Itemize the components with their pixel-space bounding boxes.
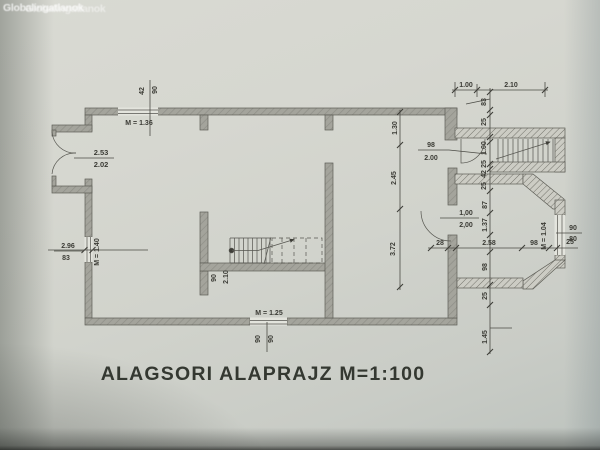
left-window-labels: 2.96 83 M = 1.40	[48, 238, 148, 266]
stair-upper-flight-dashed	[272, 238, 322, 263]
dim-bay-1: 2.58	[482, 240, 496, 247]
right-wall	[448, 168, 457, 205]
vestibule-top-wall	[52, 125, 92, 132]
top-dimension-line: 1.00 2.10	[452, 82, 548, 97]
dim-right-8: 98	[482, 263, 489, 271]
left-window-label: M = 1.40	[94, 238, 101, 266]
dim-bay-2: 98	[530, 240, 538, 247]
wall-stub-a	[200, 115, 208, 130]
top-window	[118, 108, 158, 116]
dim-right-9: 25	[482, 292, 489, 300]
interior-door-height: 2.10	[223, 270, 230, 284]
left-wall	[85, 262, 92, 318]
stair-direction-arrow	[232, 240, 294, 251]
dim-left-0: 1.30	[392, 121, 399, 135]
stair-left-wall	[200, 212, 208, 263]
bottom-window-dim-a: 90	[255, 335, 262, 343]
wall-stub-b	[325, 115, 333, 130]
vestibule-bottom-wall	[52, 186, 92, 193]
stairhall-bottom-wall	[490, 162, 565, 172]
dim-bay-0: 28	[436, 240, 444, 247]
entry-door-labels: 2.53 2.02	[74, 148, 114, 169]
vestibule-jamb	[52, 176, 56, 186]
dim-right-5: 25	[481, 182, 488, 190]
bay-door-labels: 1,00 2,00	[440, 210, 479, 229]
dim-right-7: 1.37	[482, 218, 489, 232]
dim-right-2: 1.00	[481, 141, 488, 155]
stair-left-wall-stub	[200, 271, 208, 295]
bay-window-dim-b: 80	[569, 236, 577, 243]
dim-right-0: 83	[481, 98, 488, 106]
top-window-label: M = 1.36	[125, 120, 153, 127]
stairhall-top-wall	[455, 128, 565, 138]
left-window-sill: 83	[62, 255, 70, 262]
interior-door-labels: 90 2.10	[211, 270, 230, 284]
bay-lower-diagonal-wall	[523, 260, 565, 289]
bottom-window-dim-b: 90	[268, 335, 275, 343]
dim-right-4: 42	[481, 170, 488, 178]
annex-staircase	[496, 139, 553, 162]
stair-door-labels: 98 2.00	[418, 142, 487, 162]
bay-window-label: M = 1.04	[541, 222, 548, 250]
outer-walls	[52, 108, 457, 325]
dim-right-1: 25	[481, 118, 488, 126]
photo-of-floor-plan: Globalingatlanok Globalingatlanok	[0, 0, 600, 450]
bay-door-width: 1,00	[459, 210, 473, 217]
floor-plan-svg: 1.00 2.10 83 25 1.00 25 42 25 87	[0, 0, 600, 450]
bottom-window-label: M = 1.25	[255, 310, 283, 317]
dim-right-6: 87	[482, 201, 489, 209]
dim-left-2: 3.72	[390, 242, 397, 256]
entry-door-leaf-arc	[52, 153, 76, 174]
dim-left-1: 2.45	[391, 171, 398, 185]
right-wall	[448, 235, 457, 318]
stair-door-width: 98	[427, 142, 435, 149]
bay-top-wall	[455, 174, 523, 184]
bottom-window-labels: M = 1.25 90 90	[255, 310, 283, 352]
entry-door-height: 2.02	[94, 160, 109, 169]
left-dimension-chain: 1.30 2.45 3.72	[390, 109, 403, 290]
bay-window-dim-a: 90	[569, 225, 577, 232]
stair-south-wall	[200, 263, 332, 271]
partition-wall	[325, 163, 333, 318]
dim-right-10: 1.45	[482, 330, 489, 344]
stair-door-height: 2.00	[424, 155, 438, 162]
bottom-window	[250, 318, 287, 326]
top-window-dim-a: 42	[139, 87, 146, 95]
interior-walls	[200, 115, 333, 318]
bottom-wall	[85, 318, 250, 325]
plan-title: ALAGSORI ALAPRAJZ M=1:100	[101, 363, 426, 385]
dim-top-b: 2.10	[504, 82, 518, 89]
bottom-wall	[287, 318, 457, 325]
top-window-dim-b: 90	[152, 86, 159, 94]
dim-right-3: 25	[481, 160, 488, 168]
left-window-width: 2.96	[61, 243, 75, 250]
bay-door-height: 2,00	[459, 222, 473, 229]
dim-top-a: 1.00	[459, 82, 473, 89]
bay-right-wall	[555, 200, 565, 215]
interior-door-width: 90	[211, 274, 218, 282]
watermark-shadow: Globalingatlanok	[25, 3, 105, 15]
entry-door-width: 2.53	[94, 148, 109, 157]
bay-door-arc	[421, 211, 451, 241]
main-staircase	[229, 237, 322, 264]
doors	[52, 132, 485, 241]
